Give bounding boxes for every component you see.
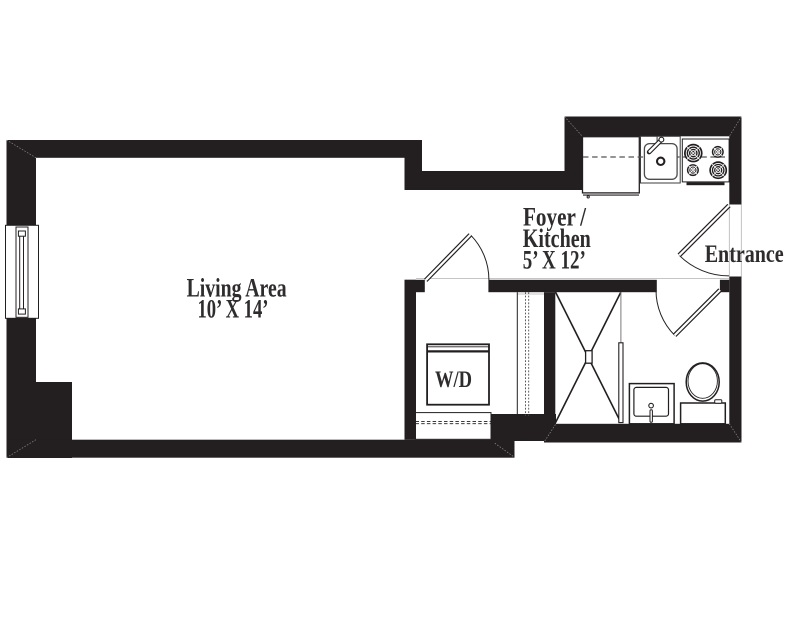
svg-text:Entrance: Entrance [705,241,784,268]
svg-text:10’ X 14’: 10’ X 14’ [198,294,269,323]
svg-text:5’ X 12’: 5’ X 12’ [523,245,586,274]
svg-text:W/D: W/D [435,367,472,392]
